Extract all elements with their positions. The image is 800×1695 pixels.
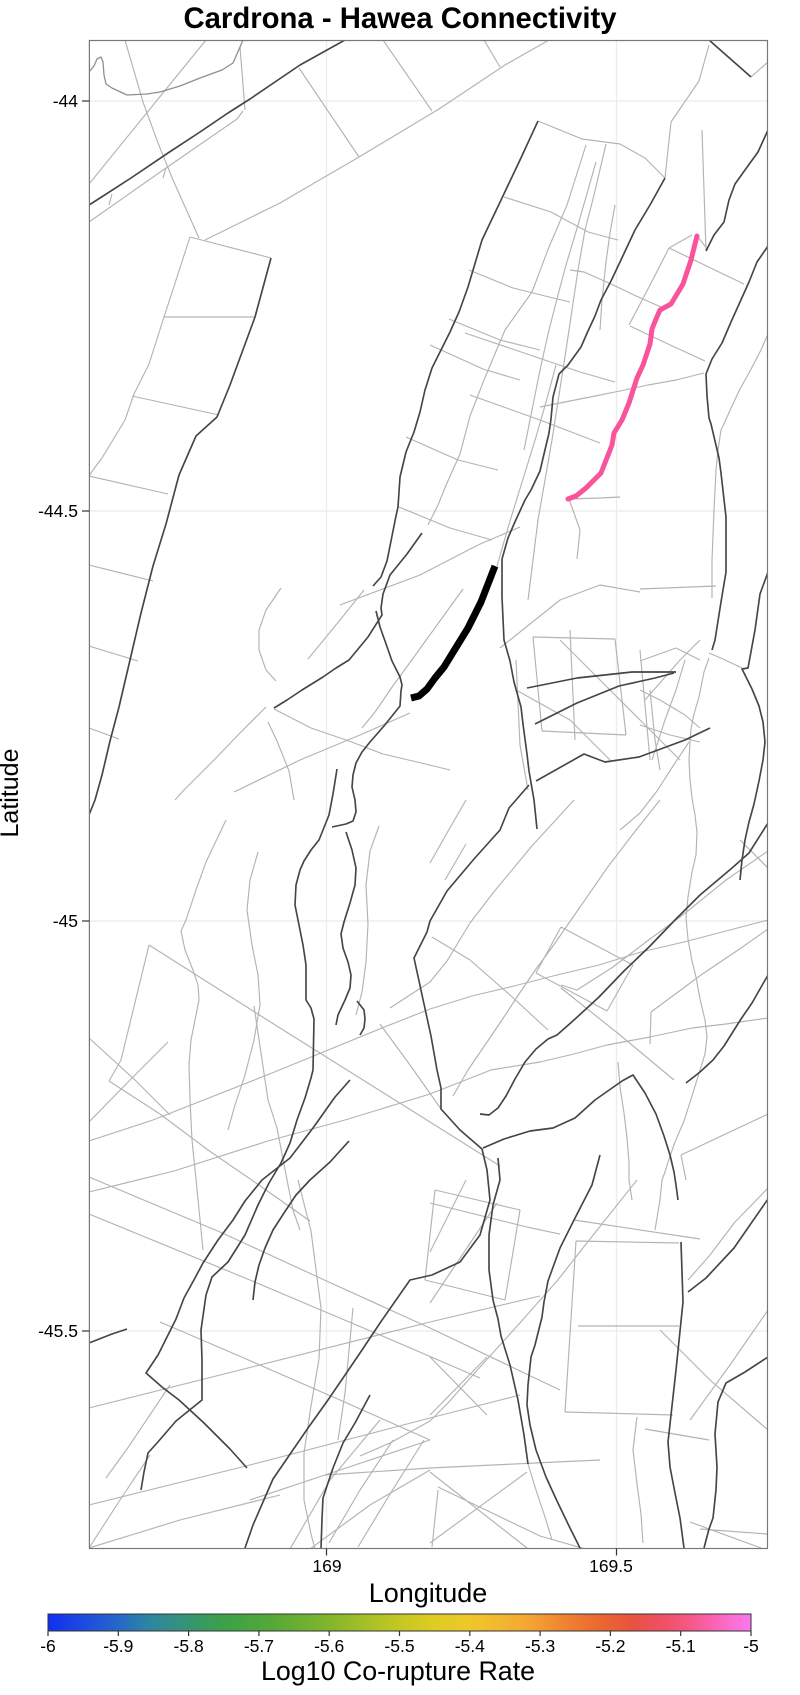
svg-text:-5.2: -5.2 [595, 1636, 625, 1656]
svg-text:-5.4: -5.4 [455, 1636, 485, 1656]
svg-text:-44: -44 [53, 91, 79, 111]
svg-text:Cardrona - Hawea Connectivity: Cardrona - Hawea Connectivity [183, 2, 617, 35]
svg-text:169.5: 169.5 [589, 1556, 633, 1576]
svg-text:-44.5: -44.5 [38, 501, 78, 521]
svg-text:-5.1: -5.1 [666, 1636, 696, 1656]
svg-text:Log10 Co-rupture Rate: Log10 Co-rupture Rate [261, 1656, 535, 1686]
svg-text:-5.9: -5.9 [103, 1636, 133, 1656]
svg-text:169: 169 [312, 1556, 341, 1576]
svg-text:-6: -6 [40, 1636, 56, 1656]
svg-text:-5.8: -5.8 [174, 1636, 204, 1656]
svg-text:-5.6: -5.6 [314, 1636, 344, 1656]
svg-text:Longitude: Longitude [369, 1578, 488, 1608]
svg-text:-45: -45 [53, 911, 78, 931]
svg-text:Latitude: Latitude [0, 749, 24, 838]
svg-text:-5.5: -5.5 [384, 1636, 414, 1656]
svg-text:-45.5: -45.5 [38, 1321, 78, 1341]
svg-text:-5: -5 [743, 1636, 759, 1656]
svg-text:-5.7: -5.7 [244, 1636, 274, 1656]
svg-text:-5.3: -5.3 [525, 1636, 555, 1656]
